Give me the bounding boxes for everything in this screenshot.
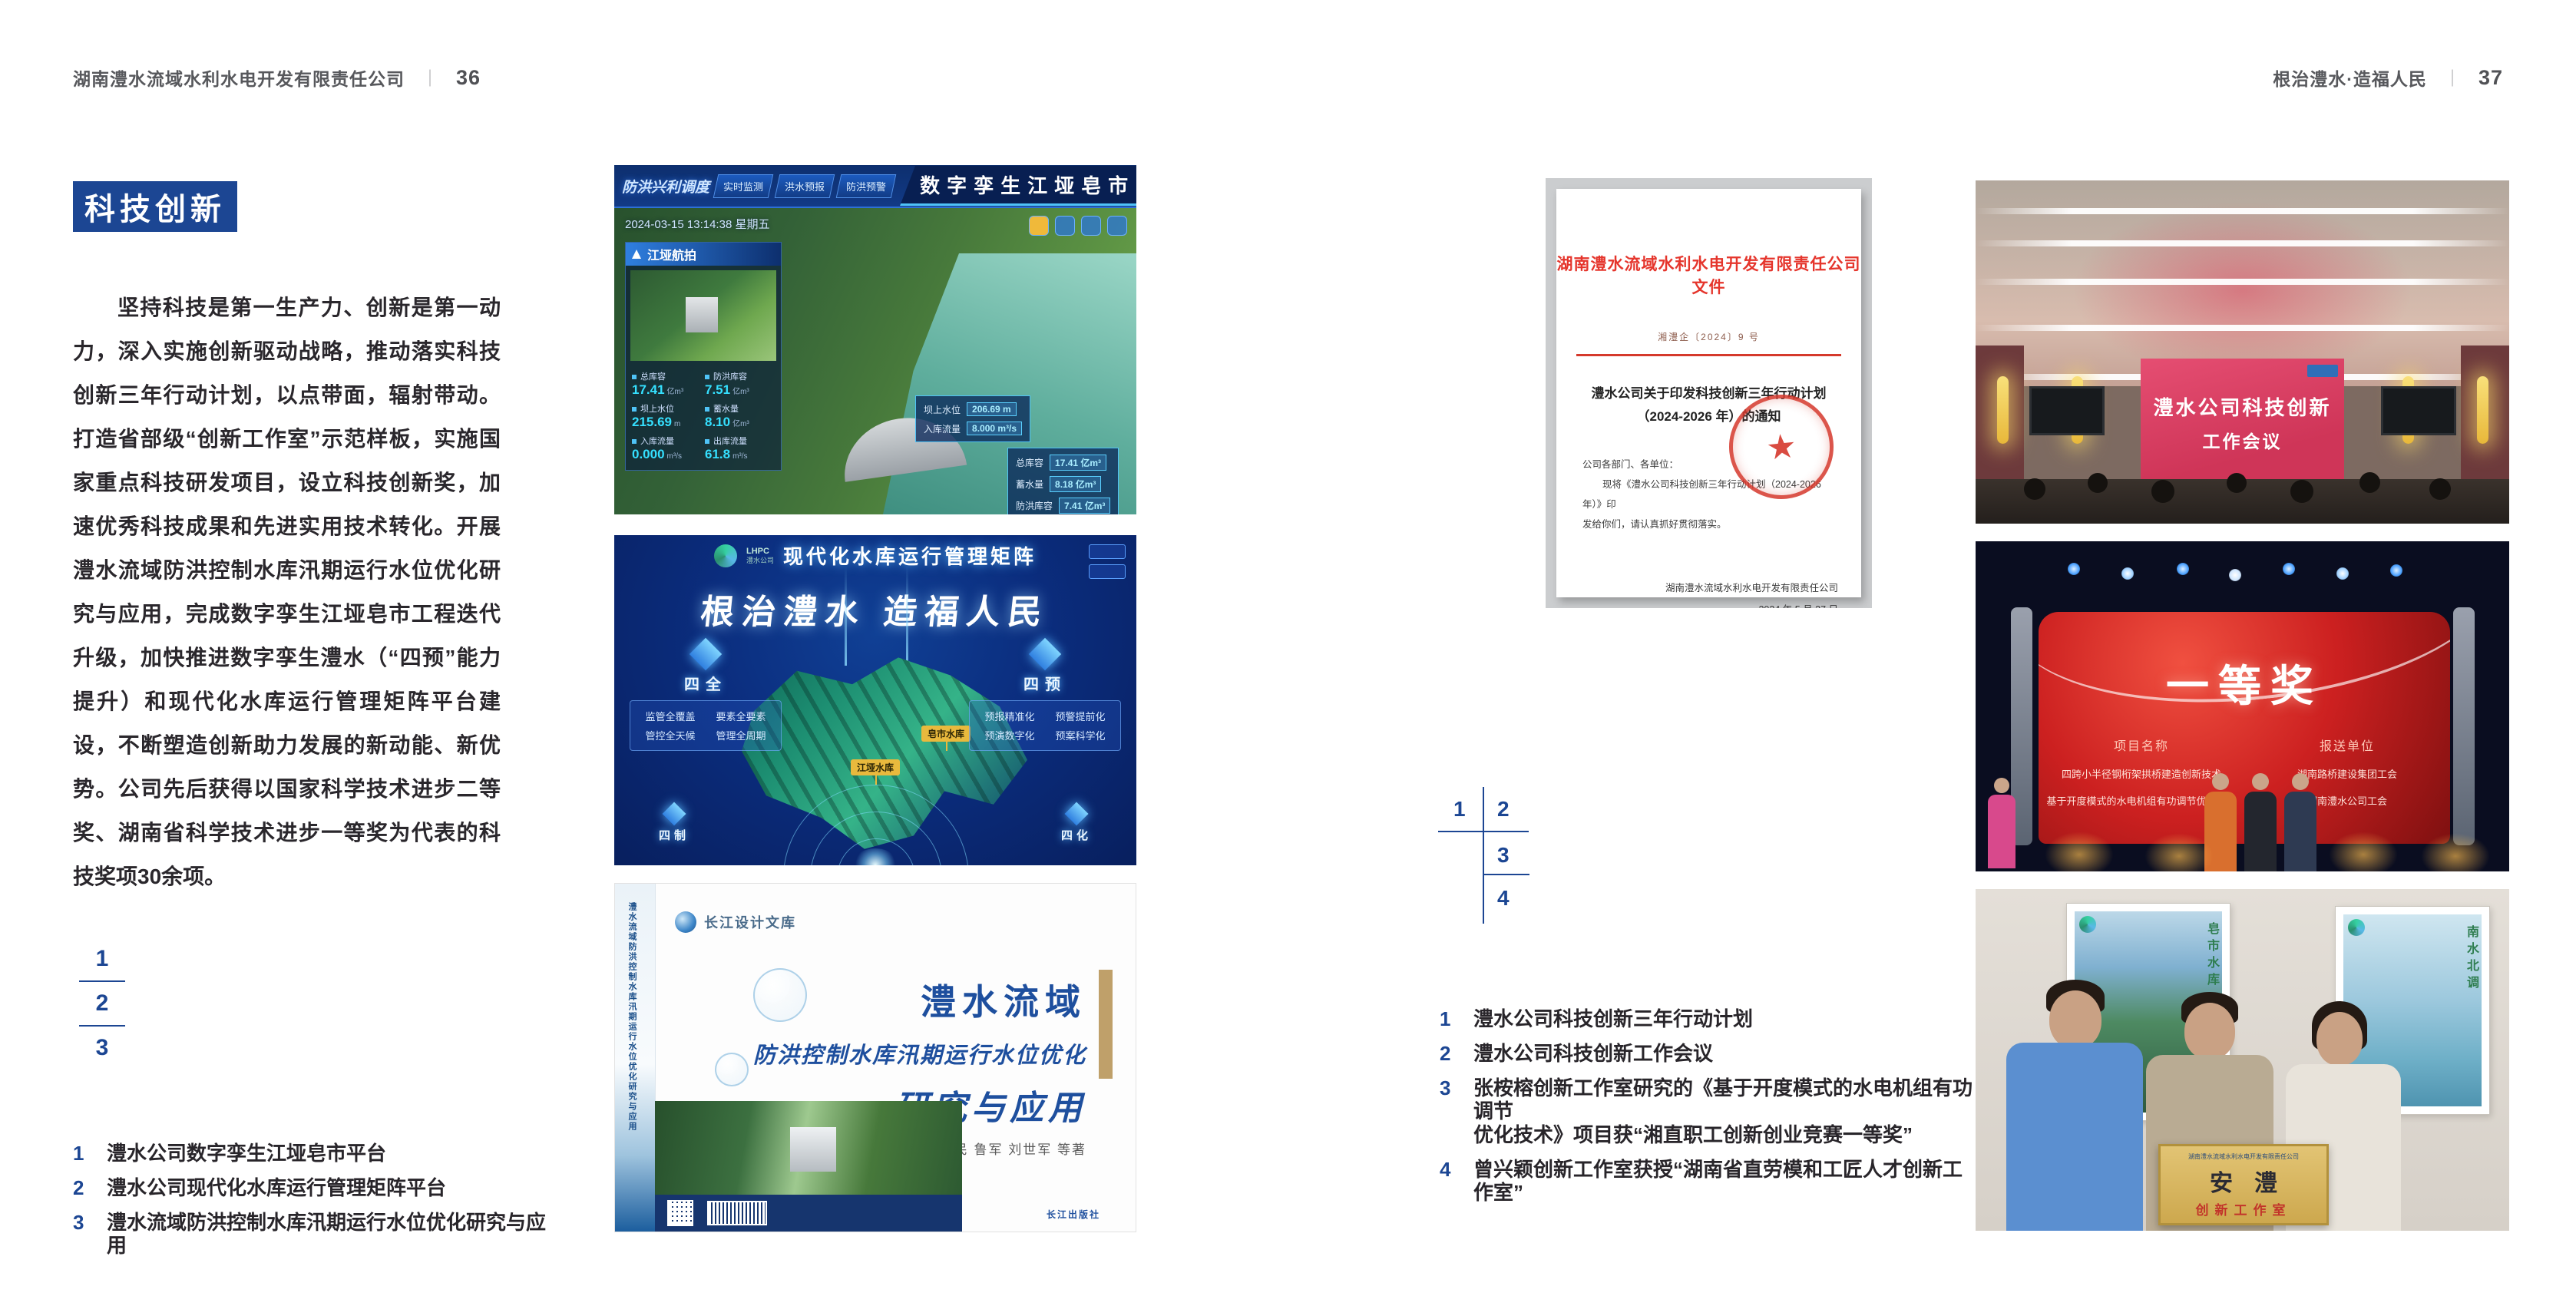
- layers-icon: [1029, 216, 1049, 236]
- lhpc-logo-icon: [714, 544, 737, 567]
- person-left: [2006, 1043, 2143, 1231]
- left-captions: 1 澧水公司数字孪生江垭皂市平台 2 澧水公司现代化水库运行管理矩阵平台 3 澧…: [73, 1142, 564, 1257]
- plaque-label: 创新工作室: [2196, 1199, 2292, 1218]
- light-strip: [1976, 208, 2509, 214]
- right-page-number: 37: [2478, 66, 2503, 90]
- water-bubble: [715, 1053, 749, 1086]
- barcode: [707, 1201, 767, 1225]
- panel-sihua-title: 四化: [1061, 827, 1092, 843]
- award-org: 湖南路桥建设集团工会: [2244, 766, 2450, 781]
- tab-flood-warning: 防洪预警: [836, 174, 897, 198]
- caption-text: 曾兴颖创新工作室获授“湖南省直劳模和工匠人才创新工作室”: [1473, 1158, 1977, 1204]
- panel-sizhi: 四制: [659, 805, 689, 843]
- diamond-icon: [689, 638, 722, 670]
- diamond-icon: [1064, 802, 1088, 825]
- panel-siquan-items: 监管全覆盖 要素全要素 管控全天候 管理全周期: [630, 700, 782, 751]
- company-name: 湖南澧水流域水利水电开发有限责任公司: [73, 64, 405, 91]
- floor-glow: [2045, 832, 2114, 871]
- subject-line1: 澧水公司关于印发科技创新三年行动计划: [1556, 382, 1861, 405]
- award-column-headers: 项目名称 报送单位: [2039, 736, 2450, 754]
- floor-glow: [2144, 833, 2214, 871]
- stat-cell: 总库容17.41亿m³: [632, 370, 702, 398]
- stage-light: [2229, 569, 2241, 581]
- panel-siyu-items: 预报精准化 预警提前化 预演数字化 预案科学化: [969, 700, 1121, 751]
- dashboard-title: 数字孪生江垭皂市: [900, 166, 1136, 206]
- intro-paragraph: 坚持科技是第一生产力、创新是第一动力，深入实施创新驱动战略，推动落实科技创新三年…: [73, 286, 501, 898]
- caption-row-wrap: 优化技术》项目获“湘直职工创新创业竞赛一等奖”: [1473, 1123, 1977, 1146]
- series-logo-icon: [675, 911, 696, 933]
- seal-star-icon: ★: [1764, 426, 1799, 468]
- caption-row: 2 澧水公司科技创新工作会议: [1440, 1042, 1977, 1065]
- index-horizontal-line: [1438, 831, 1529, 832]
- ceiling-red-glow: [2072, 201, 2413, 379]
- overlay-row: 坝上水位206.69 m: [924, 402, 1022, 416]
- light-beam: [845, 566, 847, 666]
- wall-screen: [2029, 386, 2105, 435]
- col-submitting-unit: 报送单位: [2244, 736, 2450, 754]
- audience-head: [2429, 478, 2451, 500]
- stage-light: [2283, 563, 2295, 575]
- stage-light: [2336, 567, 2349, 580]
- plaque-name: 安澧: [2188, 1164, 2299, 1198]
- index-number-1: 1: [79, 946, 125, 972]
- caption-number: 2: [73, 1176, 90, 1199]
- lhpc-logo-text: LHPC澧水公司: [746, 547, 774, 565]
- stat-cell: 出库流量61.8m³/s: [705, 435, 775, 462]
- panel-siquan-title: 四全: [684, 672, 727, 694]
- index-number-1: 1: [1453, 797, 1466, 822]
- matrix-button-bottom: [1089, 564, 1126, 579]
- light-strip: [1976, 240, 2509, 246]
- caption-number: 1: [1440, 1007, 1457, 1030]
- brochure-spread: 湖南澧水流域水利水电开发有限责任公司 ｜ 36 科技创新 坚持科技是第一生产力、…: [0, 0, 2576, 1306]
- stage-light: [2177, 563, 2189, 575]
- page-slogan: 根治澧水·造福人民: [2273, 64, 2427, 91]
- document-number: 湘澧企〔2024〕9 号: [1556, 330, 1861, 343]
- caption-row: 2 澧水公司现代化水库运行管理矩阵平台: [73, 1176, 564, 1199]
- caption-row: 3 澧水流域防洪控制水库汛期运行水位优化研究与应用: [73, 1211, 564, 1257]
- audience-head: [2024, 478, 2045, 500]
- document-red-rule: [1576, 354, 1841, 356]
- matrix-header: LHPC澧水公司 现代化水库运行管理矩阵: [614, 541, 1136, 570]
- index-number-2: 2: [79, 990, 125, 1017]
- stage-light: [2121, 567, 2134, 580]
- locate-icon: [1081, 216, 1101, 236]
- wall-screen: [2381, 386, 2456, 435]
- index-number-3: 3: [79, 1035, 125, 1061]
- floor-glow: [2329, 832, 2398, 871]
- dam-photo: [655, 1101, 962, 1195]
- sail-icon: [632, 250, 641, 259]
- screen-logo: [2307, 365, 2338, 377]
- caption-text: 澧水公司科技创新工作会议: [1473, 1042, 1713, 1065]
- index-number-2: 2: [1497, 797, 1510, 822]
- screen-title-line1: 澧水公司科技创新: [2153, 392, 2331, 421]
- dashboard-timestamp: 2024-03-15 13:14:38 星期五: [625, 216, 769, 232]
- dashboard-corner-label: 防洪兴利调度: [622, 176, 709, 197]
- aerial-panel-header: 江垭航拍: [626, 243, 781, 266]
- light-strip: [1976, 325, 2509, 331]
- book-spine-title: 澧水流域防洪控制水库汛期运行水位优化研究与应用: [626, 902, 638, 1132]
- person-head: [2316, 1012, 2363, 1066]
- left-figure-index: 1 2 3: [79, 946, 125, 1061]
- overlay-row: 防洪库容7.41 亿m³: [1016, 498, 1110, 514]
- caption-text: 澧水公司现代化水库运行管理矩阵平台: [107, 1176, 446, 1199]
- caption-number: 1: [73, 1142, 90, 1165]
- index-vertical-line: [1483, 787, 1484, 924]
- index-divider: [79, 1025, 125, 1027]
- poster-right-caption: 南水北调: [2462, 925, 2480, 993]
- figure-digital-twin-dashboard: 防洪兴利调度 实时监测 洪水预报 防洪预警 数字孪生江垭皂市 精细预演 预案生成…: [614, 165, 1136, 514]
- diamond-icon: [1029, 638, 1061, 670]
- caption-row: 4 曾兴颖创新工作室获授“湖南省直劳模和工匠人才创新工作室”: [1440, 1158, 1977, 1204]
- caption-text: 澧水公司数字孪生江垭皂市平台: [107, 1142, 386, 1165]
- header-separator: ｜: [2444, 65, 2462, 90]
- caption-text: 张桉榕创新工作室研究的《基于开度模式的水电机组有功调节: [1473, 1076, 1977, 1122]
- map-label-jiangya: 江垭水库: [851, 759, 900, 775]
- lhpc-logo-icon: [2348, 919, 2365, 936]
- figure-official-document: 湖南澧水流域水利水电开发有限责任公司文件 湘澧企〔2024〕9 号 澧水公司关于…: [1546, 178, 1872, 608]
- cover-accent-bar: [1099, 970, 1113, 1079]
- award-row: 四跨小半径钢桁架拱桥建造创新技术 湖南路桥建设集团工会: [2039, 766, 2450, 781]
- caption-text: 澧水流域防洪控制水库汛期运行水位优化研究与应用: [107, 1211, 564, 1257]
- book-title-line1: 澧水流域: [753, 974, 1086, 1025]
- document-signature: 湖南澧水流域水利水电开发有限责任公司 2024 年 5 月 27 日: [1579, 577, 1838, 608]
- series-name: 长江设计文库: [704, 912, 796, 932]
- book-spine: 澧水流域防洪控制水库汛期运行水位优化研究与应用: [615, 884, 656, 1232]
- panel-siquan: 四全 监管全覆盖 要素全要素 管控全天候 管理全周期: [633, 643, 779, 751]
- floor-glow: [2421, 833, 2490, 871]
- caption-text: 优化技术》项目获“湘直职工创新创业竞赛一等奖”: [1473, 1123, 1913, 1146]
- signature-org: 湖南澧水流域水利水电开发有限责任公司: [1579, 577, 1838, 599]
- section-title: 科技创新: [73, 181, 237, 232]
- capacity-overlay: 总库容17.41 亿m³ 蓄水量8.18 亿m³ 防洪库容7.41 亿m³: [1007, 448, 1119, 514]
- caption-number: 3: [73, 1211, 90, 1234]
- audience-head: [2088, 473, 2108, 493]
- figure-book-cover: 澧水流域防洪控制水库汛期运行水位优化研究与应用 长江设计文库 澧水流域 防洪控制…: [614, 883, 1136, 1232]
- stage-light: [2068, 563, 2080, 575]
- caption-number: 3: [1440, 1076, 1457, 1099]
- awardee-figure: [2244, 792, 2277, 871]
- left-page-header: 湖南澧水流域水利水电开发有限责任公司 ｜ 36: [73, 64, 481, 91]
- stat-cell: 蓄水量8.10亿m³: [705, 402, 775, 430]
- light-strip: [1976, 279, 2509, 285]
- right-page-header: 根治澧水·造福人民 ｜ 37: [2273, 64, 2503, 91]
- index-divider: [79, 980, 125, 982]
- light-beam: [906, 566, 908, 666]
- cover-bottom-band: [655, 1195, 962, 1232]
- matrix-button-top: [1089, 544, 1126, 559]
- audience-head: [2359, 472, 2380, 493]
- index-horizontal-line: [1483, 874, 1529, 875]
- tab-realtime-monitor: 实时监测: [713, 174, 774, 198]
- col-project-name: 项目名称: [2039, 736, 2244, 754]
- stat-cell: 入库流量0.000m³/s: [632, 435, 702, 462]
- dashboard-tool-icons: [1029, 216, 1127, 236]
- index-number-4: 4: [1497, 886, 1510, 911]
- innovation-workshop-plaque: 湖南澧水流域水利水电开发有限责任公司 安澧 创新工作室: [2158, 1144, 2329, 1225]
- aerial-panel-title: 江垭航拍: [647, 245, 696, 263]
- caption-text: 澧水公司科技创新三年行动计划: [1473, 1007, 1753, 1030]
- camera-icon: [1055, 216, 1075, 236]
- panel-sizhi-title: 四制: [659, 827, 689, 843]
- stage-light: [2390, 564, 2402, 577]
- book-title-line2: 防洪控制水库汛期运行水位优化: [753, 1037, 1086, 1070]
- dashboard-top-bar: 防洪兴利调度 实时监测 洪水预报 防洪预警 数字孪生江垭皂市 精细预演 预案生成…: [614, 165, 1136, 208]
- matrix-slogan: 根治澧水 造福人民: [614, 584, 1136, 633]
- aerial-panel: 江垭航拍 总库容17.41亿m³ 防洪库容7.51亿m³ 坝上水位215.69m…: [625, 242, 782, 471]
- figure-matrix-platform: LHPC澧水公司 现代化水库运行管理矩阵 根治澧水 造福人民 皂市水库 江垭水库…: [614, 535, 1136, 865]
- caption-number: 2: [1440, 1042, 1457, 1065]
- signature-date: 2024 年 5 月 27 日: [1579, 599, 1838, 608]
- overlay-row: 总库容17.41 亿m³: [1016, 455, 1110, 471]
- measure-icon: [1107, 216, 1127, 236]
- meeting-projection-screen: 澧水公司科技创新 工作会议: [2141, 359, 2343, 485]
- photo-innovation-meeting: 澧水公司科技创新 工作会议: [1976, 180, 2509, 524]
- audience-head: [2227, 473, 2247, 493]
- lhpc-logo-icon: [2079, 916, 2096, 933]
- document-sheet: 湖南澧水流域水利水电开发有限责任公司文件 湘澧企〔2024〕9 号 澧水公司关于…: [1556, 189, 1861, 597]
- caption-row: 1 澧水公司数字孪生江垭皂市平台: [73, 1142, 564, 1165]
- header-separator: ｜: [422, 65, 439, 90]
- diamond-icon: [662, 802, 686, 825]
- stat-cell: 防洪库容7.51亿m³: [705, 370, 775, 398]
- reservoir-stats: 总库容17.41亿m³ 防洪库容7.51亿m³ 坝上水位215.69m 蓄水量8…: [626, 365, 781, 470]
- screen-title-line2: 工作会议: [2202, 427, 2282, 453]
- map-label-zaoshi: 皂市水库: [921, 726, 971, 742]
- caption-row: 1 澧水公司科技创新三年行动计划: [1440, 1007, 1977, 1030]
- stat-cell: 坝上水位215.69m: [632, 402, 702, 430]
- overlay-row: 蓄水量8.18 亿m³: [1016, 476, 1110, 492]
- qr-code: [667, 1200, 693, 1226]
- document-red-title: 湖南澧水流域水利水电开发有限责任公司文件: [1556, 252, 1861, 298]
- book-series: 长江设计文库: [675, 911, 796, 933]
- left-page-number: 36: [456, 66, 481, 90]
- index-number-3: 3: [1497, 843, 1510, 868]
- tab-flood-forecast: 洪水预报: [775, 174, 835, 198]
- panel-sihua: 四化: [1061, 805, 1092, 843]
- caption-row: 3 张桉榕创新工作室研究的《基于开度模式的水电机组有功调节: [1440, 1076, 1977, 1122]
- publisher-name: 长江出版社: [1047, 1208, 1100, 1221]
- wall-lamp: [2477, 376, 2488, 444]
- panel-siyu-title: 四预: [1023, 672, 1066, 694]
- photo-plaque-presentation: 皂市水库 南水北调 湖南澧水流域水利水电开发有限责任公司 安澧 创新工作室: [1976, 889, 2509, 1231]
- overlay-row: 入库流量8.000 m³/s: [924, 422, 1022, 435]
- photo-award-ceremony: 一等奖 项目名称 报送单位 四跨小半径钢桁架拱桥建造创新技术 湖南路桥建设集团工…: [1976, 541, 2509, 871]
- stage-pillar: [2453, 607, 2475, 845]
- plaque-org-name: 湖南澧水流域水利水电开发有限责任公司: [2188, 1152, 2299, 1161]
- caption-number: 4: [1440, 1158, 1457, 1181]
- aerial-photo-thumbnail: [630, 270, 776, 361]
- right-captions: 1 澧水公司科技创新三年行动计划 2 澧水公司科技创新工作会议 3 张桉榕创新工…: [1440, 1007, 1977, 1204]
- section-title-label: 科技创新: [84, 184, 226, 229]
- matrix-title: 现代化水库运行管理矩阵: [783, 541, 1037, 570]
- host-figure: [1988, 795, 2015, 868]
- awardee-figure: [2284, 792, 2316, 871]
- water-level-overlay: 坝上水位206.69 m 入库流量8.000 m³/s: [915, 395, 1030, 442]
- person-head: [2184, 1003, 2235, 1060]
- person-head: [2049, 990, 2101, 1049]
- body-line2: 发给你们，请认真抓好贯彻落实。: [1582, 514, 1835, 534]
- poster-left-caption: 皂市水库: [2202, 922, 2221, 990]
- wall-lamp: [1997, 376, 2009, 444]
- panel-siyu: 四预 预报精准化 预警提前化 预演数字化 预案科学化: [972, 643, 1118, 751]
